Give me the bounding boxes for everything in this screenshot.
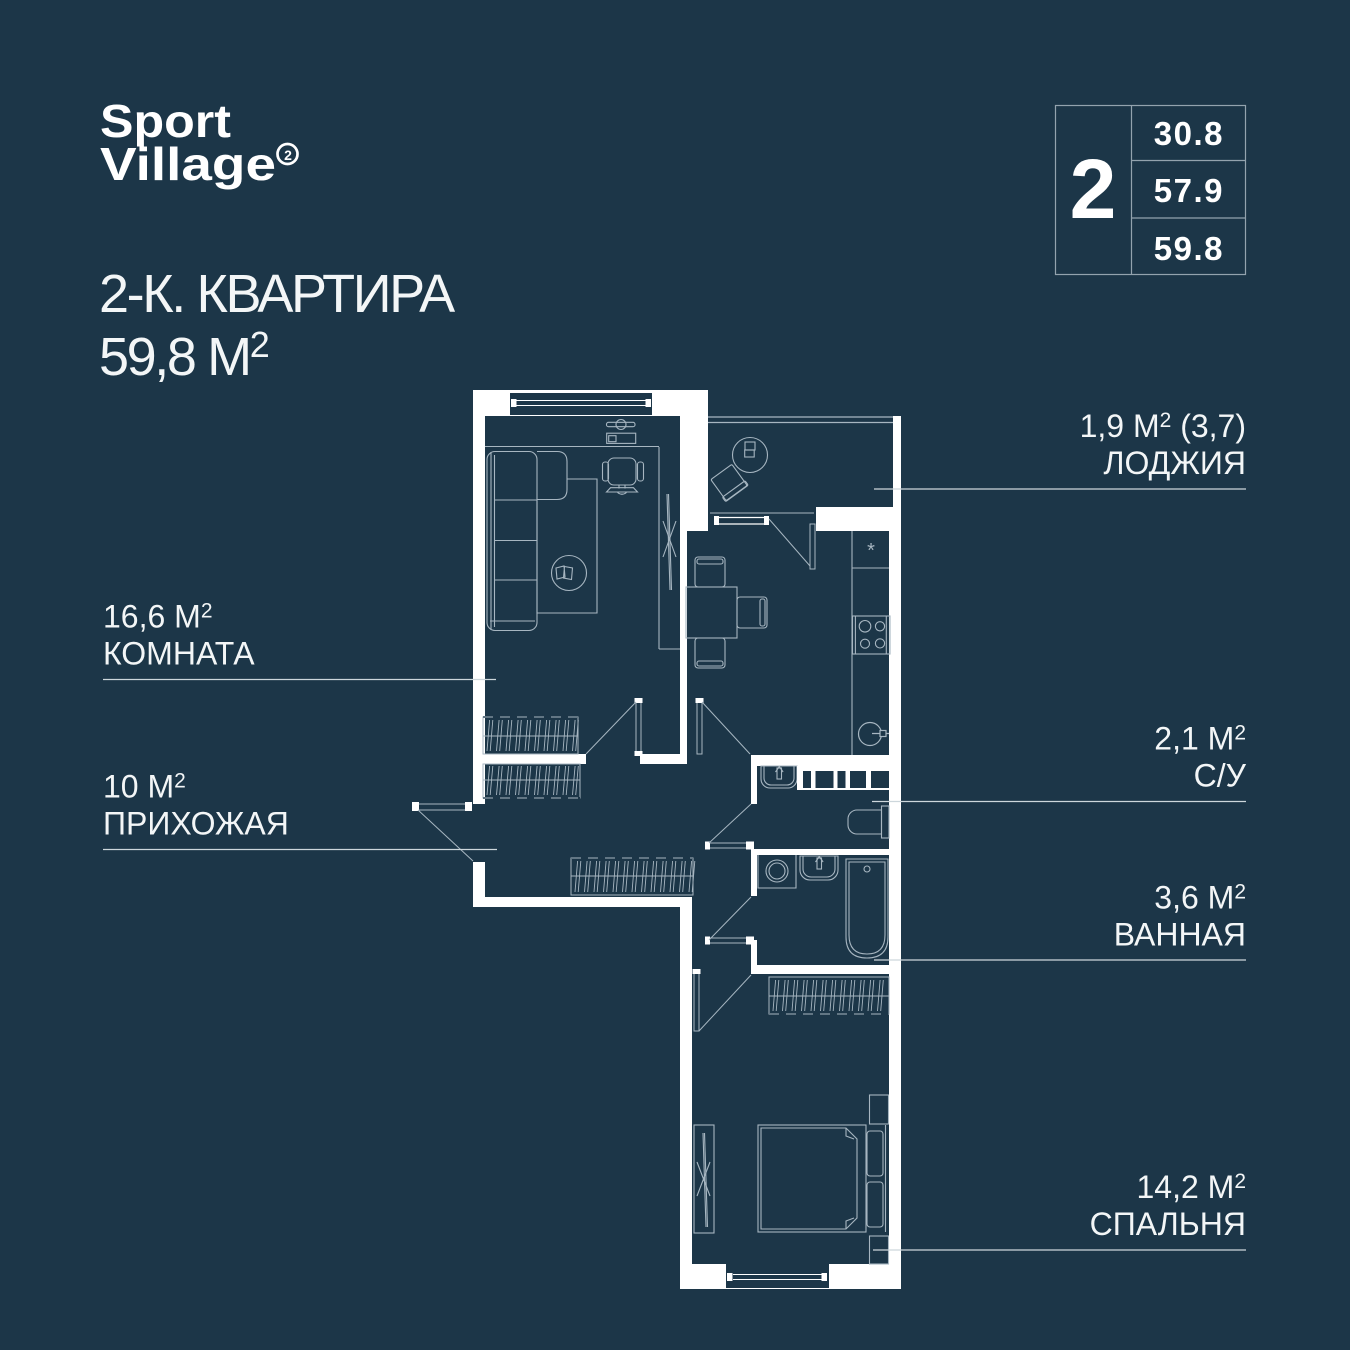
svg-text:ВАННАЯ: ВАННАЯ xyxy=(1114,917,1246,953)
svg-text:30.8: 30.8 xyxy=(1154,115,1224,152)
svg-text:КОМНАТА: КОМНАТА xyxy=(103,636,255,672)
svg-text:14,2 М2: 14,2 М2 xyxy=(1136,1169,1246,1205)
svg-text:СПАЛЬНЯ: СПАЛЬНЯ xyxy=(1090,1206,1246,1242)
svg-text:С/У: С/У xyxy=(1194,758,1247,794)
svg-text:2-К. КВАРТИРА: 2-К. КВАРТИРА xyxy=(99,264,455,324)
svg-text:ПРИХОЖАЯ: ПРИХОЖАЯ xyxy=(103,806,289,842)
svg-text:57.9: 57.9 xyxy=(1154,172,1224,209)
svg-text:2: 2 xyxy=(1070,142,1117,236)
svg-text:10 М2: 10 М2 xyxy=(103,769,186,805)
svg-text:ЛОДЖИЯ: ЛОДЖИЯ xyxy=(1103,445,1246,481)
svg-text:59,8 М2: 59,8 М2 xyxy=(99,324,269,387)
svg-text:Village: Village xyxy=(100,138,276,190)
svg-text:2,1 М2: 2,1 М2 xyxy=(1154,721,1246,757)
svg-text:3,6 М2: 3,6 М2 xyxy=(1154,880,1246,916)
svg-text:*: * xyxy=(867,540,875,562)
svg-text:2: 2 xyxy=(284,147,292,163)
svg-text:59.8: 59.8 xyxy=(1154,230,1224,267)
svg-text:16,6 М2: 16,6 М2 xyxy=(103,599,213,635)
